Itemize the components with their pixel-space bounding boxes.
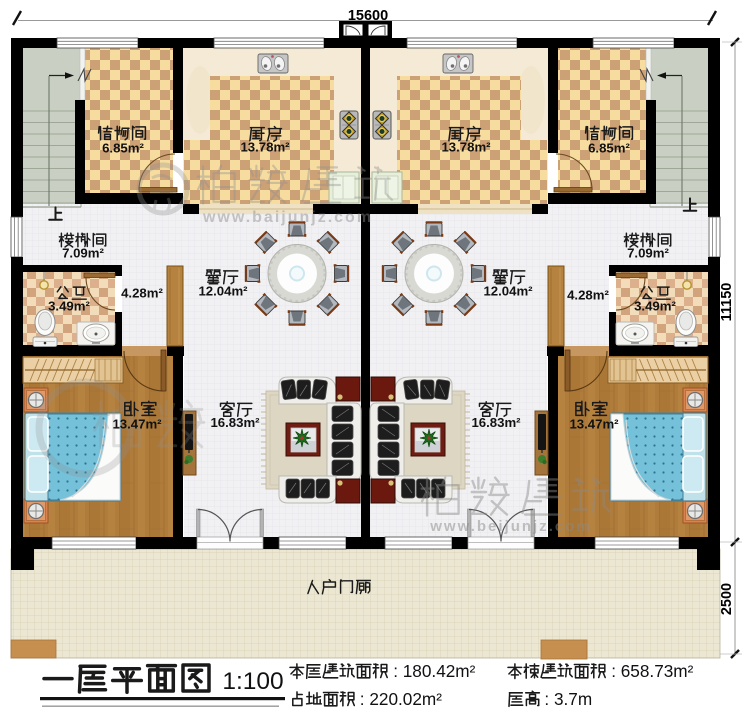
svg-text:3.49m²: 3.49m² xyxy=(634,299,676,314)
svg-text:11150: 11150 xyxy=(719,283,735,322)
svg-text:12.04m²: 12.04m² xyxy=(198,284,248,299)
svg-text:: 220.02m²: : 220.02m² xyxy=(360,689,442,709)
svg-text:13.78m²: 13.78m² xyxy=(441,140,491,155)
svg-text:1:100: 1:100 xyxy=(222,668,283,695)
svg-text:13.47m²: 13.47m² xyxy=(112,417,162,432)
svg-text:4.28m²: 4.28m² xyxy=(567,288,609,303)
svg-text:13.78m²: 13.78m² xyxy=(240,140,290,155)
svg-text:: 3.7m: : 3.7m xyxy=(544,689,592,709)
svg-text:7.09m²: 7.09m² xyxy=(627,246,669,261)
svg-text:6.85m²: 6.85m² xyxy=(588,141,630,156)
svg-text:13.47m²: 13.47m² xyxy=(569,417,619,432)
svg-text:: 658.73m²: : 658.73m² xyxy=(611,661,693,681)
svg-text:12.04m²: 12.04m² xyxy=(483,284,533,299)
svg-text:: 180.42m²: : 180.42m² xyxy=(393,661,475,681)
svg-text:7.09m²: 7.09m² xyxy=(62,246,104,261)
svg-text:16.83m²: 16.83m² xyxy=(471,415,521,430)
svg-text:www.beijunjz.com: www.beijunjz.com xyxy=(429,518,591,535)
svg-text:3.49m²: 3.49m² xyxy=(48,299,90,314)
svg-text:6.85m²: 6.85m² xyxy=(102,141,144,156)
svg-text:4.28m²: 4.28m² xyxy=(121,286,163,301)
svg-text:www.baijunjz.com: www.baijunjz.com xyxy=(202,209,373,226)
svg-text:16.83m²: 16.83m² xyxy=(210,415,260,430)
svg-text:2500: 2500 xyxy=(719,583,735,615)
